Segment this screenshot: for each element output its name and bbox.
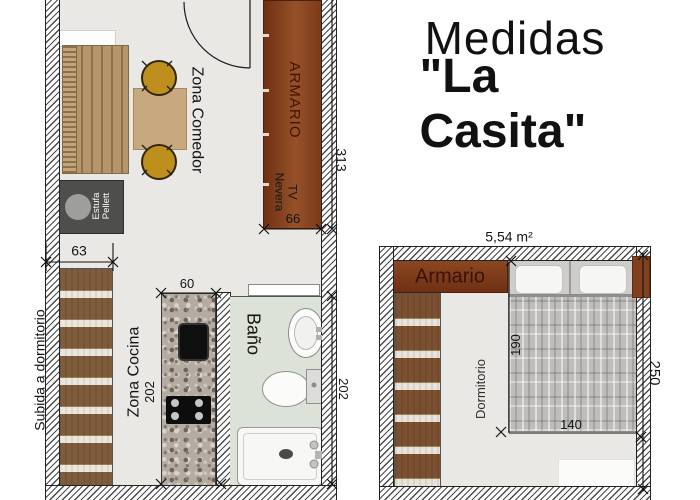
pillow-left	[515, 265, 563, 294]
shower-tray	[237, 427, 323, 486]
shelf-mark	[262, 183, 269, 186]
shelf-mark	[262, 133, 269, 136]
kitchen-counter	[161, 293, 216, 486]
estufa-line2: Pellett	[102, 193, 112, 220]
bedroom-armario-label: Armario	[415, 267, 485, 288]
shelf-mark	[262, 34, 269, 37]
sofa	[62, 45, 129, 174]
burner	[195, 399, 203, 407]
bedroom-left-wall	[380, 247, 393, 500]
bedside-panel	[632, 256, 650, 298]
stove-door-circle	[65, 194, 91, 220]
zona-comedor-label: Zona Comedor	[188, 67, 205, 174]
sink-basin	[294, 316, 318, 350]
tv-label: TV	[286, 173, 299, 212]
dim-202-kitchen: 202	[143, 381, 157, 403]
estufa-label: Estufa Pellett	[92, 193, 112, 220]
bedroom-bottom-wall	[380, 487, 650, 500]
floorplan-image: Zona Comedor ARMARIO TV Nevera 66 313 Es…	[0, 0, 700, 500]
bedroom-top-wall	[380, 247, 650, 260]
burner	[195, 412, 203, 420]
dim-202-bano: 202	[336, 378, 350, 400]
pillow-divider	[569, 261, 571, 294]
dining-chair-top	[141, 60, 177, 96]
bed-head	[508, 260, 637, 295]
burner	[171, 412, 179, 420]
bed-blanket	[508, 295, 637, 432]
dining-table	[133, 88, 187, 150]
dim-66: 66	[286, 212, 300, 226]
dim-140: 140	[560, 418, 582, 432]
cooktop	[166, 396, 211, 424]
nevera-label: Nevera	[273, 173, 286, 212]
pillow-right	[579, 265, 627, 294]
dormitorio-label: Dormitorio	[474, 359, 488, 419]
burner	[171, 399, 179, 407]
living-bottom-wall	[46, 486, 336, 500]
bathroom-door-band	[248, 284, 320, 296]
shower-tray-inner	[243, 433, 317, 480]
dim-63: 63	[71, 244, 87, 259]
armario-label: ARMARIO	[286, 61, 302, 138]
stairs-bedroom	[394, 293, 441, 487]
shelf-mark	[262, 89, 269, 92]
dining-chair-bottom	[141, 144, 177, 180]
tv-nevera-label: TV Nevera	[273, 173, 298, 212]
floor-mat	[558, 459, 635, 488]
living-right-wall	[322, 0, 336, 500]
kitchen-sink	[178, 323, 209, 361]
bathroom-sink	[288, 308, 324, 358]
zona-cocina-label: Zona Cocina	[127, 327, 144, 418]
toilet-bowl	[262, 371, 310, 407]
stairs-living	[58, 268, 113, 486]
dim-60: 60	[180, 277, 194, 291]
sofa-armrest	[63, 46, 77, 173]
bathroom-partition-wall	[217, 293, 230, 486]
title-line2: "La Casita"	[420, 49, 607, 159]
dim-190: 190	[509, 334, 523, 356]
living-left-wall	[46, 0, 59, 500]
subida-dormitorio-label: Subida a dormitorio	[33, 309, 48, 430]
area-label: 5,54 m²	[485, 230, 532, 245]
dim-250: 250	[646, 360, 662, 385]
bano-label: Baño	[244, 313, 263, 355]
